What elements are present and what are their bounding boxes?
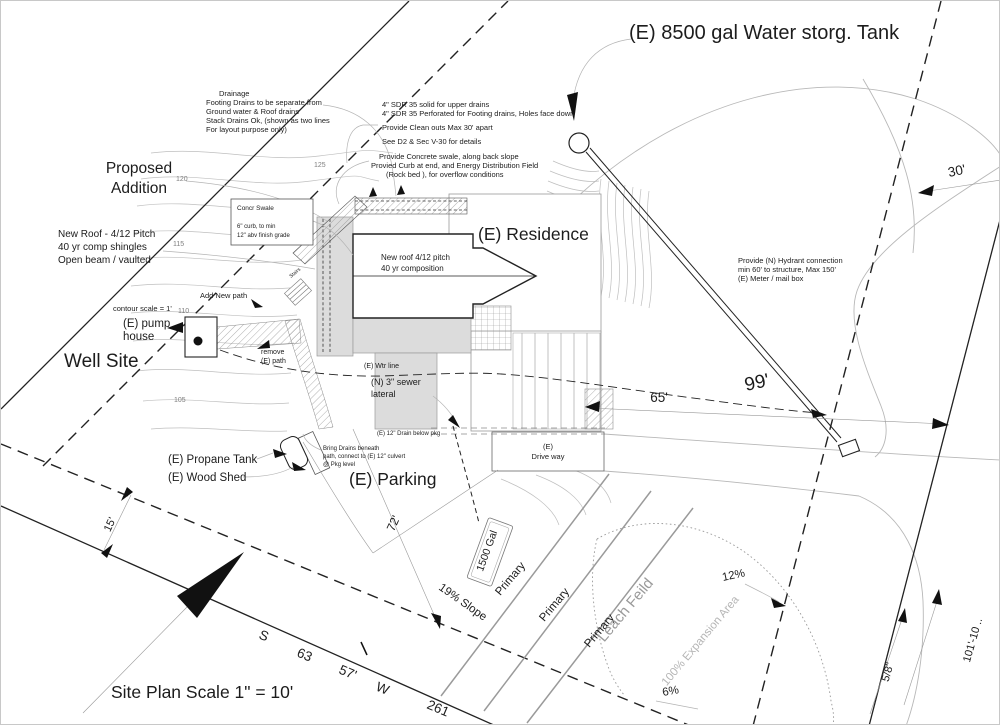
residence-label: (E) Residence xyxy=(478,224,589,244)
property-line-east-solid xyxy=(869,216,1000,725)
wtr-line-label: (E) Wtr line xyxy=(364,363,399,370)
setback-line-south xyxy=(1,444,691,725)
hydrant-note: (E) Meter / mail box xyxy=(738,274,804,283)
dim-58-label: 5/8" xyxy=(880,661,897,683)
pump-house-label: (E) pump xyxy=(123,318,170,330)
dim-101-leader xyxy=(904,595,939,705)
tank-supply-line xyxy=(590,148,841,438)
site-plan-title: Site Plan Scale 1" = 10' xyxy=(111,682,293,702)
propane-leader xyxy=(257,453,273,459)
bring-drains-note: path, connect to (E) 12" culvert xyxy=(323,454,406,460)
concr-swale-text: 12" abv finish grade xyxy=(237,233,290,239)
patio-grid-hatch xyxy=(469,306,511,350)
swale-note: Provide Concrete swale, along back slope xyxy=(379,152,519,161)
back-swale-band xyxy=(355,198,467,214)
water-tank-symbol xyxy=(569,133,589,153)
proposed-addition-label: Addition xyxy=(111,180,167,197)
sewer-lateral-line xyxy=(453,426,479,523)
hydrant-note: Provide (N) Hydrant connection xyxy=(738,256,843,265)
stairs-label: Stairs xyxy=(288,266,302,279)
contour-label: 110 xyxy=(178,308,189,315)
water-tank-title: (E) 8500 gal Water storg. Tank xyxy=(629,22,900,44)
sdr-note: See D2 & Sec V-30 for details xyxy=(382,137,481,146)
well-symbol xyxy=(194,337,203,346)
contour-label: 125 xyxy=(314,162,326,169)
bring-drains-note: Bring Drains beneath xyxy=(323,446,379,452)
add-new-path-label: Add New path xyxy=(200,291,247,300)
concr-swale-text: Concr Swale xyxy=(237,205,274,212)
bearing-part: 63 xyxy=(295,645,315,665)
leach-line-primary xyxy=(441,474,609,696)
driveway-label: Drive way xyxy=(532,452,565,461)
drain-below-pkg-label: (E) 12" Drain below pkg xyxy=(377,431,440,437)
tank-supply-line xyxy=(586,152,837,442)
swale-drain-arrow xyxy=(369,187,377,197)
contour-scale-note: contour scale = 1' xyxy=(113,304,172,313)
bring-drains-note: @ Pkg level xyxy=(323,462,355,468)
site-plan-drawing: (E) 8500 gal Water storg. Tank Proposed … xyxy=(1,1,1000,725)
proposed-addition-label: Proposed xyxy=(106,160,172,177)
contour-label: 120 xyxy=(176,176,188,183)
pct6-label: 6% xyxy=(661,684,679,699)
sewer-arrow xyxy=(448,415,460,428)
remove-path-label: remove xyxy=(261,349,284,356)
bearing-part: 57' xyxy=(337,662,359,683)
dim-30-arrow xyxy=(918,185,934,196)
parking-label: (E) Parking xyxy=(349,469,437,489)
bearing-part: S xyxy=(257,627,271,644)
bearing-label: S 63 57' W 261 xyxy=(257,627,452,720)
pct12-leader xyxy=(745,584,779,602)
road-edges xyxy=(576,79,1000,725)
concr-swale-text: 6" curb, to min xyxy=(237,224,275,230)
dim-99-label: 99' xyxy=(743,370,772,396)
concr-swale-callout: Concr Swale 6" curb, to min 12" abv fini… xyxy=(231,199,313,245)
wood-shed-label: (E) Wood Shed xyxy=(168,472,246,484)
pct12-arrow xyxy=(771,598,786,608)
drainage-note: Ground water & Roof drains xyxy=(206,107,299,116)
swale-drain-arrow xyxy=(397,185,405,195)
pump-house-label: house xyxy=(123,331,154,343)
new-roof-note: New Roof - 4/12 Pitch xyxy=(58,229,155,240)
wood-shed-leader xyxy=(243,467,293,477)
stairs-symbol xyxy=(284,279,311,306)
bearing-distance: 261 xyxy=(425,697,452,720)
hydrant-note: min 60' to structure, Max 150' xyxy=(738,265,836,274)
pump-house-outline xyxy=(185,317,217,357)
water-line-arrow xyxy=(811,409,827,418)
dim-65-label: 65' xyxy=(650,390,668,405)
driveway-label: (E) xyxy=(543,442,554,451)
contour-label: 115 xyxy=(173,241,184,248)
dim-72-label: 72' xyxy=(384,513,403,533)
property-line-east-dashed xyxy=(753,1,941,725)
drainage-note: Footing Drains to be separate from xyxy=(206,98,322,107)
sewer-label: lateral xyxy=(371,389,396,399)
new-roof-leader xyxy=(163,251,315,269)
roof-plan-note: New roof 4/12 pitch xyxy=(381,253,450,262)
new-roof-note: Open beam / vaulted xyxy=(58,255,151,266)
addition-lower-block xyxy=(353,318,471,353)
add-path-arrow xyxy=(251,299,263,308)
bearing-part: W xyxy=(374,679,392,698)
slope-19-label: 19% Slope xyxy=(436,582,488,624)
meter-mailbox-symbol xyxy=(838,439,859,456)
remove-path-label: (E) path xyxy=(261,358,286,365)
drainage-note-leader xyxy=(323,105,396,196)
propane-label: (E) Propane Tank xyxy=(168,454,258,466)
sdr-note: 4" SDR 35 Perforated for Footing drains,… xyxy=(382,109,574,118)
dim-15-label: 15' xyxy=(102,516,119,534)
pct12-label: 12% xyxy=(721,567,746,584)
new-roof-note: 40 yr comp shingles xyxy=(58,242,147,253)
sdr-note: 4" SDR 35 solid for upper drains xyxy=(382,100,490,109)
dim-101-arrow xyxy=(932,589,942,605)
swale-note: (Rock bed ), for overflow conditions xyxy=(386,170,504,179)
roof-plan-note: 40 yr composition xyxy=(381,264,444,273)
drainage-note: Drainage xyxy=(219,89,249,98)
sewer-label: (N) 3" sewer xyxy=(371,377,421,387)
drainage-note: For layout purpose only) xyxy=(206,125,287,134)
well-site-label: Well Site xyxy=(64,351,139,372)
drainage-note: Stack Drains Ok, (shown as two lines xyxy=(206,116,330,125)
dim-101-label: 101'-10 .. xyxy=(961,617,985,664)
bearing-tick xyxy=(361,642,367,655)
contour-label: 105 xyxy=(174,397,186,404)
dim-30-label: 30' xyxy=(947,162,967,180)
dim-65-line xyxy=(589,408,945,424)
expansion-area-label: 100% Expansion Area xyxy=(660,593,742,688)
dim-72-arrow xyxy=(431,613,441,629)
sdr-note: Provide Clean outs Max 30' apart xyxy=(382,123,494,132)
pct6-leader xyxy=(656,701,698,709)
tank-title-leader xyxy=(573,39,631,101)
site-plan-sheet: (E) 8500 gal Water storg. Tank Proposed … xyxy=(0,0,1000,725)
leach-field-label: Leach Feild xyxy=(594,575,657,645)
swale-note: Provied Curb at end, and Energy Distribu… xyxy=(371,161,538,170)
